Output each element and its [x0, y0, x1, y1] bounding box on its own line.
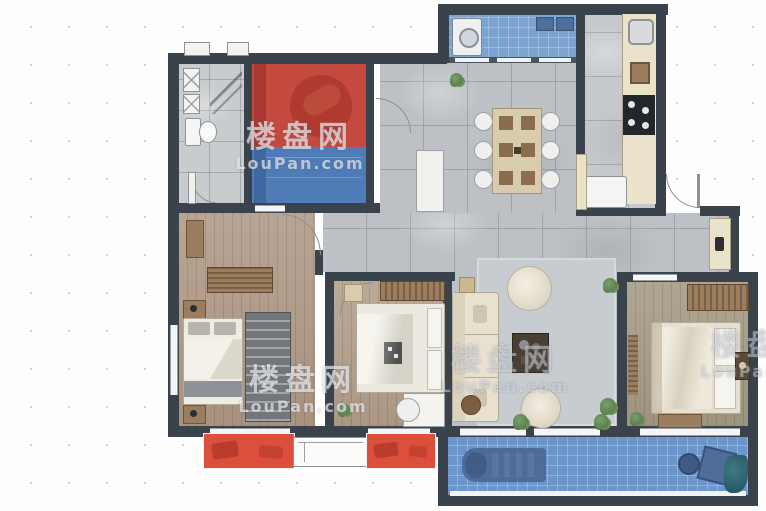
nightstand: [183, 405, 206, 424]
hallway-dining-floor: [380, 63, 578, 213]
plant: [630, 412, 643, 425]
dining-chair: [474, 141, 493, 160]
balcony-shelf: [536, 17, 554, 31]
entry-door-leaf: [697, 174, 700, 208]
wall-segment: [438, 4, 449, 63]
wall-segment: [325, 272, 455, 281]
wall-segment: [366, 62, 374, 209]
ac-unit: [227, 42, 249, 56]
highlight-red-zone: [252, 63, 366, 147]
wall-segment: [655, 4, 666, 216]
pouf: [507, 266, 552, 311]
washing-machine: [452, 18, 482, 56]
wardrobe: [687, 284, 749, 311]
bed: [356, 303, 445, 393]
wall-segment: [576, 14, 585, 154]
dining-chair: [474, 112, 493, 131]
stove: [623, 95, 655, 135]
bed-bench: [658, 414, 702, 428]
plant: [513, 414, 528, 429]
plant: [594, 414, 609, 429]
shoe-cabinet: [709, 218, 731, 270]
window: [170, 325, 178, 395]
plant: [450, 73, 463, 86]
floor-lamp: [459, 277, 475, 293]
lounge-chair: [462, 448, 546, 482]
window: [255, 205, 285, 212]
balcony-sliding-door: [534, 428, 600, 436]
wall-segment: [438, 426, 448, 506]
entry-door-arc: [666, 174, 700, 208]
nightstand: [735, 352, 750, 380]
dining-chair: [541, 170, 560, 189]
tv-stand: [207, 267, 273, 293]
wall-segment: [576, 208, 666, 216]
plant: [603, 278, 617, 292]
dining-chair: [541, 112, 560, 131]
balcony-sliding-door: [460, 428, 526, 436]
wall-segment: [438, 495, 758, 506]
balcony-sliding-door: [640, 428, 740, 436]
bathroom-door-leaf: [188, 172, 196, 204]
toilet-bowl: [199, 121, 217, 143]
kitchen-threshold: [576, 154, 587, 210]
balcony-sill: [450, 491, 746, 496]
balcony-shelf: [556, 17, 574, 31]
ac-unit: [184, 42, 210, 56]
bay-window: [293, 437, 368, 467]
master-door-threshold: [633, 274, 677, 281]
side-table: [461, 395, 481, 415]
balcony-plants: [724, 455, 748, 493]
wall-segment: [617, 281, 627, 428]
wall-segment: [244, 62, 252, 209]
floor-plan-canvas: 楼盘网 LouPan.com 楼盘网 LouPan.com 楼盘网 LouPan…: [0, 0, 766, 511]
bed: [651, 322, 741, 414]
bed: [183, 318, 243, 405]
nightstand: [183, 300, 206, 319]
kitchen-shelf: [630, 62, 650, 84]
tv-stand: [628, 335, 638, 395]
plant: [600, 398, 616, 414]
washer-box: [183, 94, 200, 114]
wall-segment: [325, 272, 334, 427]
wall-segment: [748, 272, 758, 506]
highlight-blue-zone: [252, 147, 366, 203]
plant: [338, 404, 350, 416]
highlighted-room: [252, 63, 366, 203]
bay-window-red: [203, 433, 295, 469]
door-arc: [282, 214, 321, 255]
hall-cabinet: [416, 150, 444, 212]
bathroom-cabinet: [183, 68, 200, 92]
dining-chair: [541, 141, 560, 160]
dining-table: [492, 108, 542, 194]
dining-chair: [474, 170, 493, 189]
wall-shelf: [186, 220, 204, 258]
shower-glass: [210, 68, 242, 114]
wardrobe: [245, 312, 291, 422]
balcony-chair: [678, 453, 700, 475]
wall-shelf: [380, 281, 445, 301]
refrigerator: [585, 176, 627, 208]
small-cabinet: [344, 284, 363, 302]
desk-chair: [396, 398, 420, 422]
coffee-table: [512, 333, 549, 373]
balcony-sliding-door: [449, 57, 576, 63]
bay-window-red: [366, 433, 436, 469]
kitchen-sink: [628, 19, 654, 45]
